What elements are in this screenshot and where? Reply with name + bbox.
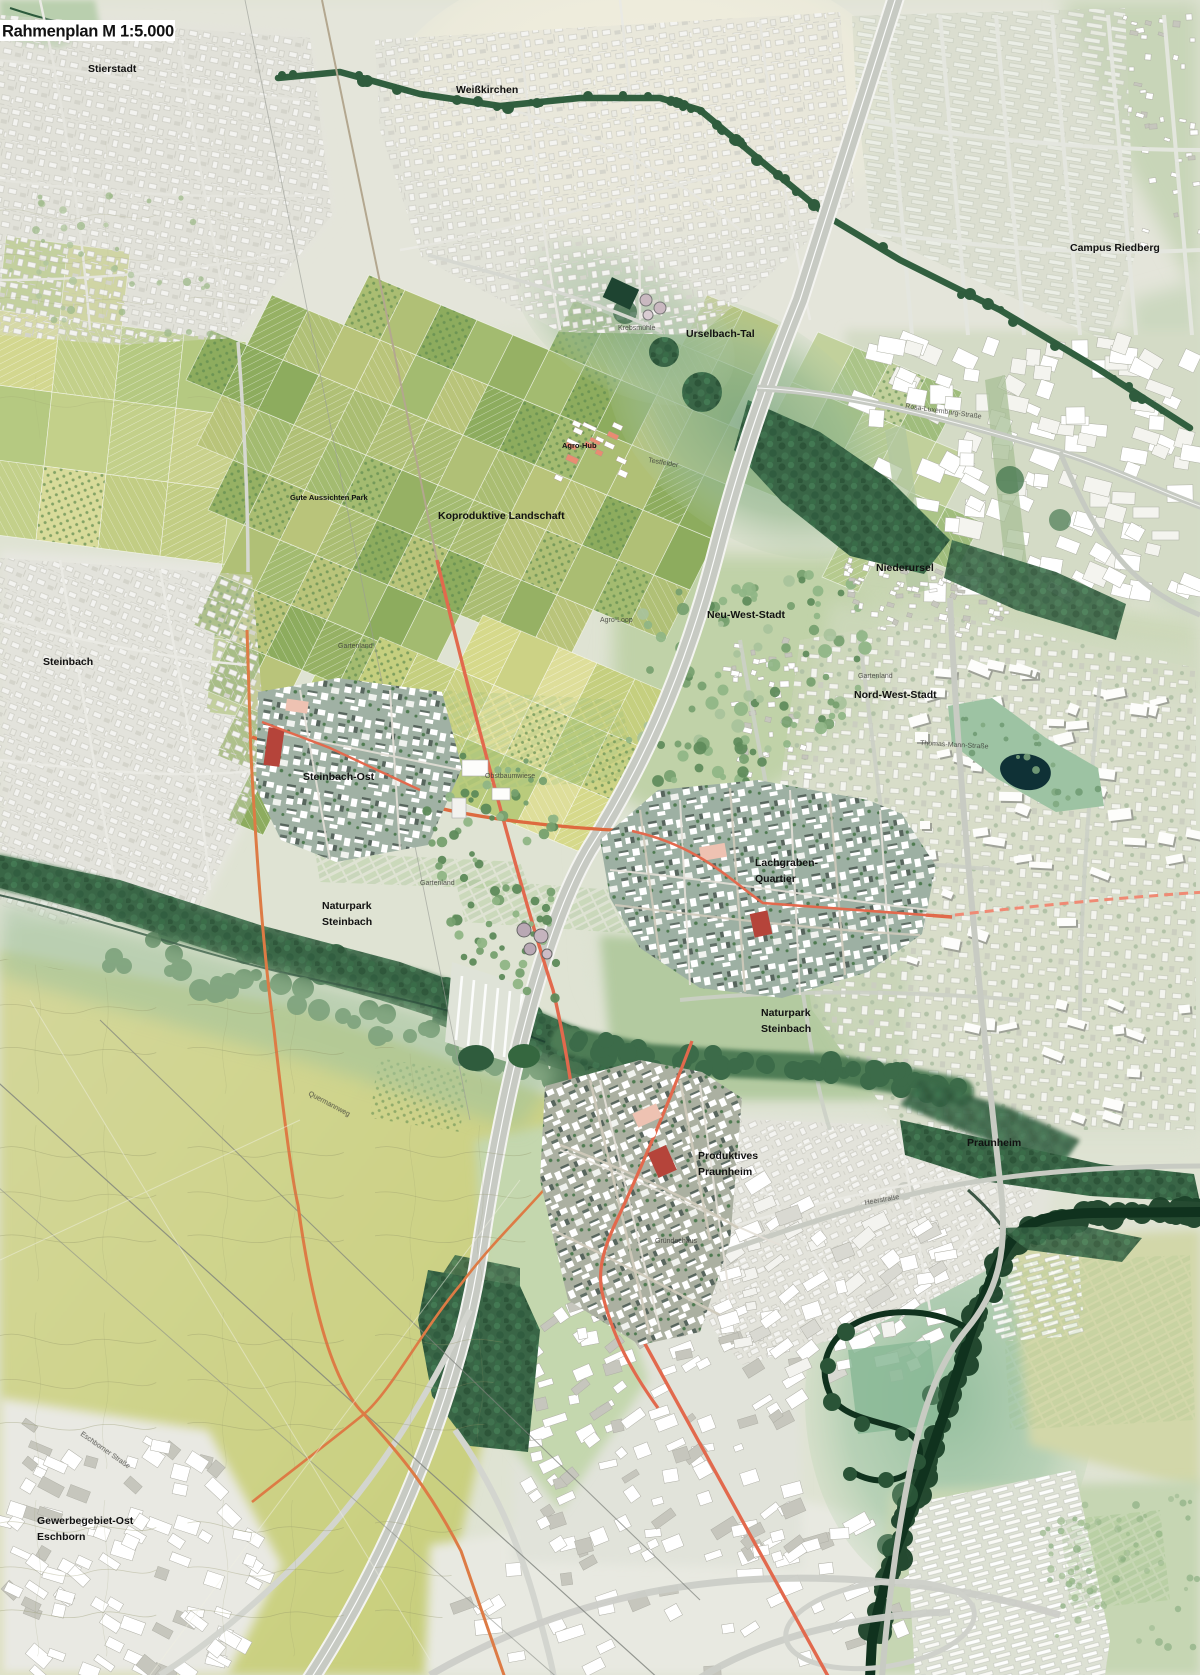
svg-text:Praunheim: Praunheim	[698, 1166, 752, 1178]
svg-text:Krebsmühle: Krebsmühle	[618, 325, 655, 332]
svg-text:Agro-Hub: Agro-Hub	[562, 441, 597, 450]
svg-text:Praunheim: Praunheim	[967, 1137, 1021, 1149]
svg-text:Niederursel: Niederursel	[876, 562, 934, 574]
svg-text:Naturpark: Naturpark	[322, 900, 372, 912]
svg-text:Quartier: Quartier	[755, 873, 796, 885]
svg-text:Gartenland: Gartenland	[420, 880, 455, 887]
svg-text:Lachgraben-: Lachgraben-	[755, 857, 819, 869]
svg-text:Weißkirchen: Weißkirchen	[456, 84, 518, 96]
svg-text:Eschborn: Eschborn	[37, 1531, 85, 1543]
svg-text:Gute Aussichten Park: Gute Aussichten Park	[290, 493, 368, 502]
svg-text:Steinbach: Steinbach	[43, 656, 93, 668]
svg-text:Naturpark: Naturpark	[761, 1007, 811, 1019]
svg-text:Neu-West-Stadt: Neu-West-Stadt	[707, 609, 785, 621]
svg-text:Gartenland: Gartenland	[858, 673, 893, 680]
svg-text:Gründochaus: Gründochaus	[655, 1238, 698, 1245]
svg-text:Produktives: Produktives	[698, 1150, 758, 1162]
svg-text:Koproduktive Landschaft: Koproduktive Landschaft	[438, 510, 565, 522]
svg-text:Rahmenplan M 1:5.000: Rahmenplan M 1:5.000	[2, 23, 174, 41]
svg-text:Gartenland: Gartenland	[338, 643, 373, 650]
svg-text:Agro-Loop: Agro-Loop	[600, 617, 633, 624]
svg-text:Stierstadt: Stierstadt	[88, 63, 137, 75]
svg-text:Gewerbegebiet-Ost: Gewerbegebiet-Ost	[37, 1515, 134, 1527]
svg-text:Steinbach-Ost: Steinbach-Ost	[303, 771, 375, 783]
svg-text:Nord-West-Stadt: Nord-West-Stadt	[854, 689, 937, 701]
svg-text:Campus Riedberg: Campus Riedberg	[1070, 242, 1160, 254]
svg-text:Steinbach: Steinbach	[322, 916, 372, 928]
svg-text:Urselbach-Tal: Urselbach-Tal	[686, 328, 755, 340]
svg-text:Steinbach: Steinbach	[761, 1023, 811, 1035]
svg-text:Obstbaumwiese: Obstbaumwiese	[485, 773, 535, 780]
